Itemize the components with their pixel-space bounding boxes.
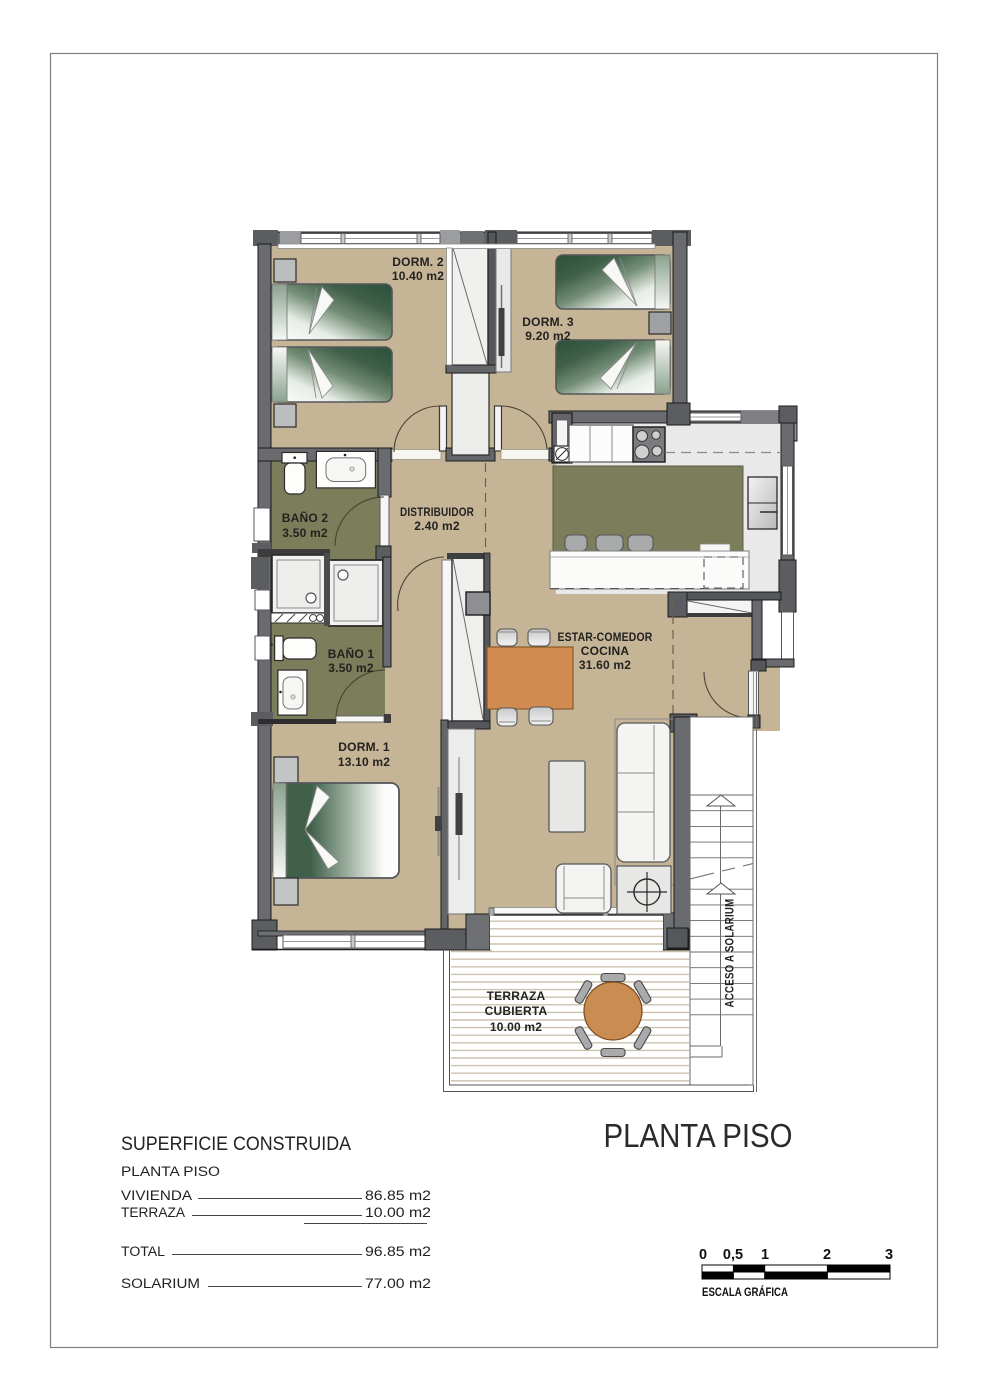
- svg-text:10.00 m2: 10.00 m2: [365, 1205, 431, 1220]
- svg-text:DISTRIBUIDOR: DISTRIBUIDOR: [400, 505, 474, 519]
- svg-text:SOLARIUM: SOLARIUM: [121, 1276, 200, 1291]
- svg-text:0,5: 0,5: [723, 1247, 743, 1263]
- svg-text:13.10 m2: 13.10 m2: [338, 755, 390, 769]
- svg-text:ESTAR-COMEDOR: ESTAR-COMEDOR: [558, 630, 653, 644]
- svg-text:ESCALA GRÁFICA: ESCALA GRÁFICA: [702, 1284, 788, 1299]
- svg-text:96.85 m2: 96.85 m2: [365, 1244, 431, 1259]
- svg-text:DORM. 2: DORM. 2: [392, 255, 444, 269]
- svg-text:10.00 m2: 10.00 m2: [490, 1020, 542, 1034]
- svg-text:ACCESO A SOLARIUM: ACCESO A SOLARIUM: [725, 899, 737, 1008]
- svg-text:DORM. 1: DORM. 1: [338, 740, 390, 754]
- svg-text:COCINA: COCINA: [581, 644, 630, 658]
- svg-text:2: 2: [823, 1247, 831, 1263]
- svg-text:BAÑO 2: BAÑO 2: [282, 510, 329, 525]
- svg-text:86.85 m2: 86.85 m2: [365, 1188, 431, 1203]
- svg-text:TOTAL: TOTAL: [121, 1244, 166, 1259]
- svg-text:VIVIENDA: VIVIENDA: [121, 1188, 192, 1203]
- svg-text:77.00 m2: 77.00 m2: [365, 1276, 431, 1291]
- svg-text:3: 3: [885, 1247, 893, 1263]
- svg-text:SUPERFICIE CONSTRUIDA: SUPERFICIE CONSTRUIDA: [121, 1134, 351, 1155]
- svg-text:PLANTA PISO: PLANTA PISO: [121, 1164, 220, 1179]
- svg-text:31.60 m2: 31.60 m2: [579, 658, 631, 672]
- svg-text:2.40 m2: 2.40 m2: [414, 519, 460, 533]
- svg-text:TERRAZA: TERRAZA: [121, 1205, 185, 1220]
- svg-text:3.50 m2: 3.50 m2: [328, 661, 374, 675]
- svg-text:9.20 m2: 9.20 m2: [525, 329, 571, 343]
- svg-text:10.40 m2: 10.40 m2: [392, 269, 444, 283]
- svg-text:0: 0: [699, 1247, 707, 1263]
- svg-text:BAÑO 1: BAÑO 1: [328, 646, 375, 661]
- svg-text:1: 1: [761, 1247, 769, 1263]
- svg-text:3.50 m2: 3.50 m2: [282, 526, 328, 540]
- svg-text:PLANTA PISO: PLANTA PISO: [604, 1117, 793, 1154]
- svg-text:TERRAZA: TERRAZA: [487, 989, 546, 1003]
- svg-text:DORM. 3: DORM. 3: [522, 315, 574, 329]
- svg-text:CUBIERTA: CUBIERTA: [485, 1004, 548, 1018]
